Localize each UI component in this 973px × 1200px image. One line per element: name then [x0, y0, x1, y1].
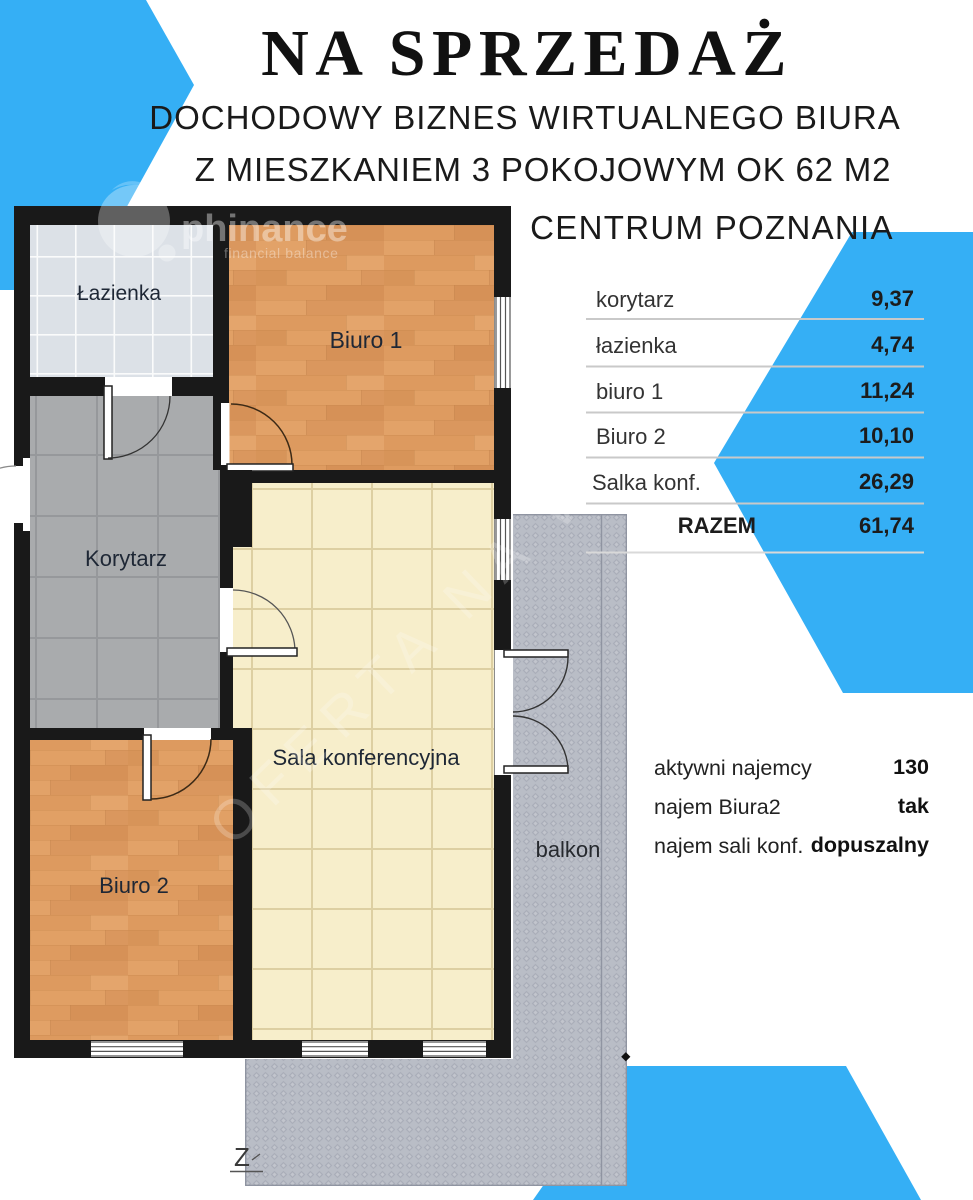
svg-text:9,37: 9,37 [871, 286, 914, 311]
svg-text:Łazienka: Łazienka [77, 282, 161, 305]
svg-text:financial balance: financial balance [224, 245, 339, 261]
svg-text:Biuro 2: Biuro 2 [596, 424, 666, 449]
svg-text:Biuro 2: Biuro 2 [99, 873, 169, 898]
svg-text:11,24: 11,24 [860, 378, 915, 403]
svg-text:łazienka: łazienka [596, 333, 677, 358]
svg-text:DOCHODOWY BIZNES WIRTUALNEGO B: DOCHODOWY BIZNES WIRTUALNEGO BIURA [149, 99, 901, 136]
svg-text:Biuro 1: Biuro 1 [330, 327, 403, 353]
svg-text:najem Biura2: najem Biura2 [654, 795, 781, 819]
svg-text:phinance: phinance [181, 208, 348, 250]
svg-text:CENTRUM POZNANIA: CENTRUM POZNANIA [530, 209, 894, 246]
svg-text:RAZEM: RAZEM [678, 513, 756, 538]
svg-text:10,10: 10,10 [859, 423, 914, 448]
svg-text:NA SPRZEDAŻ: NA SPRZEDAŻ [261, 17, 793, 90]
svg-text:balkon: balkon [536, 837, 601, 862]
svg-text:Z MIESZKANIEM 3 POKOJOWYM OK 6: Z MIESZKANIEM 3 POKOJOWYM OK 62 M2 [195, 151, 891, 188]
svg-text:Salka konf.: Salka konf. [592, 470, 701, 495]
svg-text:Z: Z [234, 1142, 250, 1172]
svg-text:aktywni najemcy: aktywni najemcy [654, 756, 812, 780]
svg-text:130: 130 [893, 755, 929, 779]
svg-text:korytarz: korytarz [596, 287, 674, 312]
svg-text:Korytarz: Korytarz [85, 546, 167, 571]
svg-text:najem sali konf.: najem sali konf. [654, 834, 803, 858]
svg-text:26,29: 26,29 [859, 469, 914, 494]
svg-text:dopuszalny: dopuszalny [811, 833, 929, 857]
svg-text:4,74: 4,74 [871, 332, 915, 357]
svg-text:61,74: 61,74 [859, 513, 915, 538]
svg-text:biuro 1: biuro 1 [596, 379, 663, 404]
svg-text:tak: tak [898, 794, 929, 818]
